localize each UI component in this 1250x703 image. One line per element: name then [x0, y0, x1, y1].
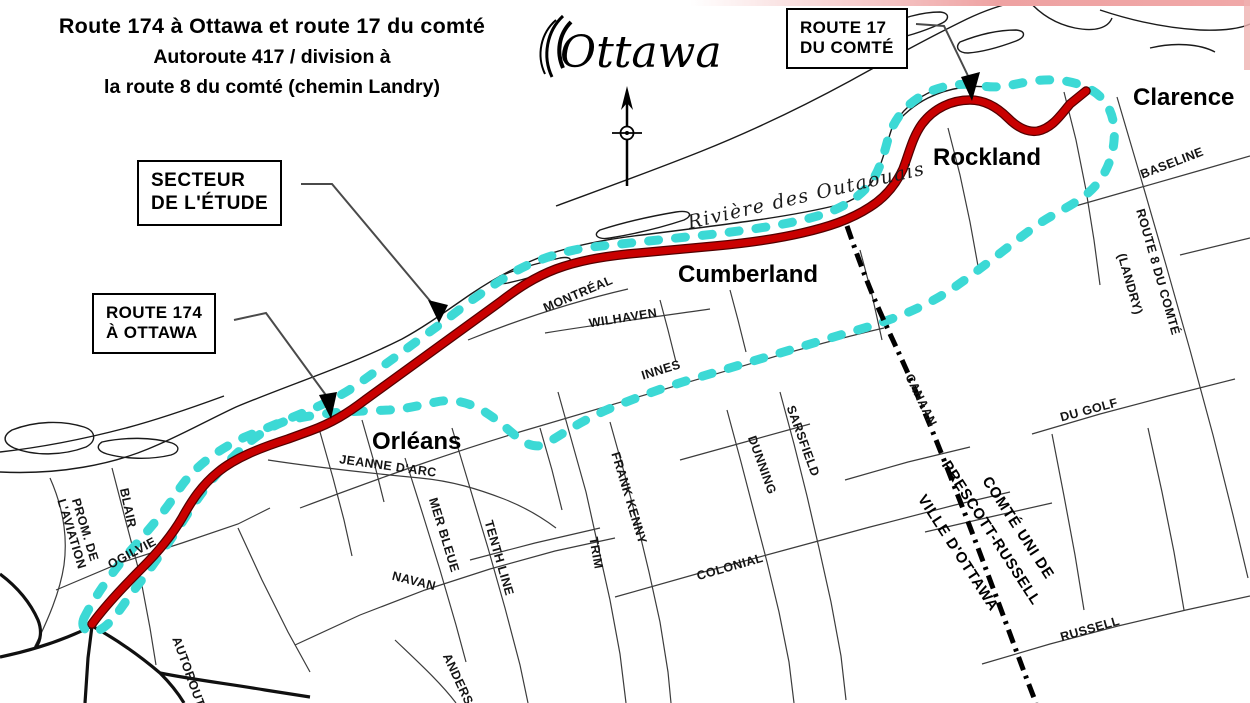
place-label-clarence: Clarence [1133, 84, 1234, 112]
highway-417-interchange [0, 574, 310, 703]
callout-secteur-line2: DE L'ÉTUDE [151, 193, 268, 216]
map-title: Route 174 à Ottawa et route 17 du comté … [4, 14, 540, 99]
callout-route174-line2: À OTTAWA [106, 323, 202, 343]
map-canvas: Ottawa Route 174 à Ottawa et route 17 du… [0, 0, 1250, 703]
scan-artifact-top [690, 0, 1250, 6]
map-title-line1: Route 174 à Ottawa et route 17 du comté [4, 14, 540, 39]
place-label-orleans: Orléans [372, 428, 461, 456]
map-title-line3: la route 8 du comté (chemin Landry) [4, 76, 540, 99]
north-arrow-icon [612, 86, 642, 186]
ottawa-logo: Ottawa [541, 16, 722, 78]
map-title-line2: Autoroute 417 / division à [4, 46, 540, 69]
place-label-rockland: Rockland [933, 144, 1041, 172]
callout-route174-line1: ROUTE 174 [106, 303, 202, 323]
callout-route17-line2: DU COMTÉ [800, 38, 894, 58]
callout-secteur-etude: SECTEUR DE L'ÉTUDE [137, 160, 282, 226]
place-label-cumberland: Cumberland [678, 261, 818, 289]
callout-secteur-line1: SECTEUR [151, 170, 268, 193]
callout-route17-line1: ROUTE 17 [800, 18, 894, 38]
callout-route-17: ROUTE 17 DU COMTÉ [786, 8, 908, 69]
callout-route-174: ROUTE 174 À OTTAWA [92, 293, 216, 354]
ottawa-logo-text: Ottawa [560, 27, 722, 78]
scan-artifact-right [1244, 0, 1250, 70]
